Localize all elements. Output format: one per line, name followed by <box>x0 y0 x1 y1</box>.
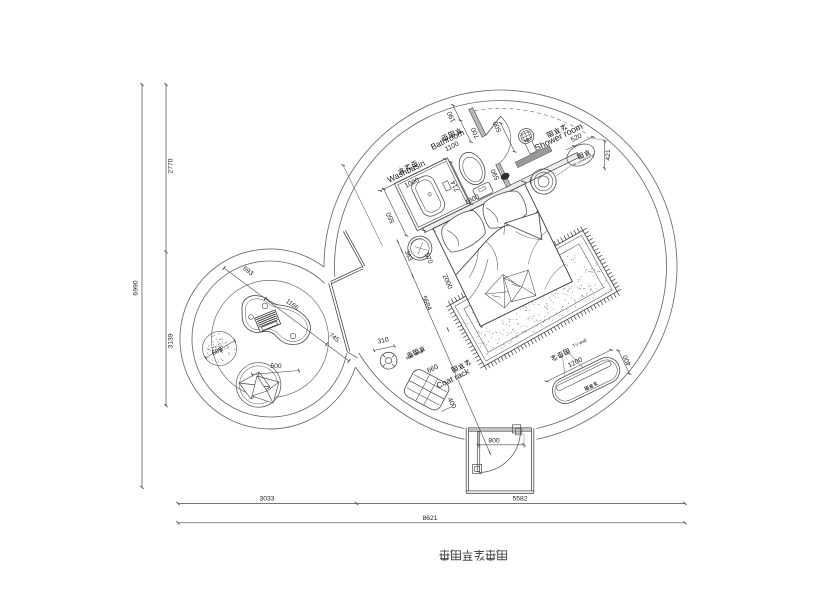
svg-text:3139: 3139 <box>168 333 175 348</box>
svg-text:8621: 8621 <box>422 515 437 522</box>
svg-text:2770: 2770 <box>168 158 175 173</box>
svg-text:5582: 5582 <box>512 496 527 503</box>
svg-text:800: 800 <box>488 437 500 444</box>
svg-text:500: 500 <box>270 363 282 370</box>
svg-text:6990: 6990 <box>133 280 140 295</box>
svg-text:3033: 3033 <box>259 496 274 503</box>
svg-text:421: 421 <box>605 149 612 161</box>
